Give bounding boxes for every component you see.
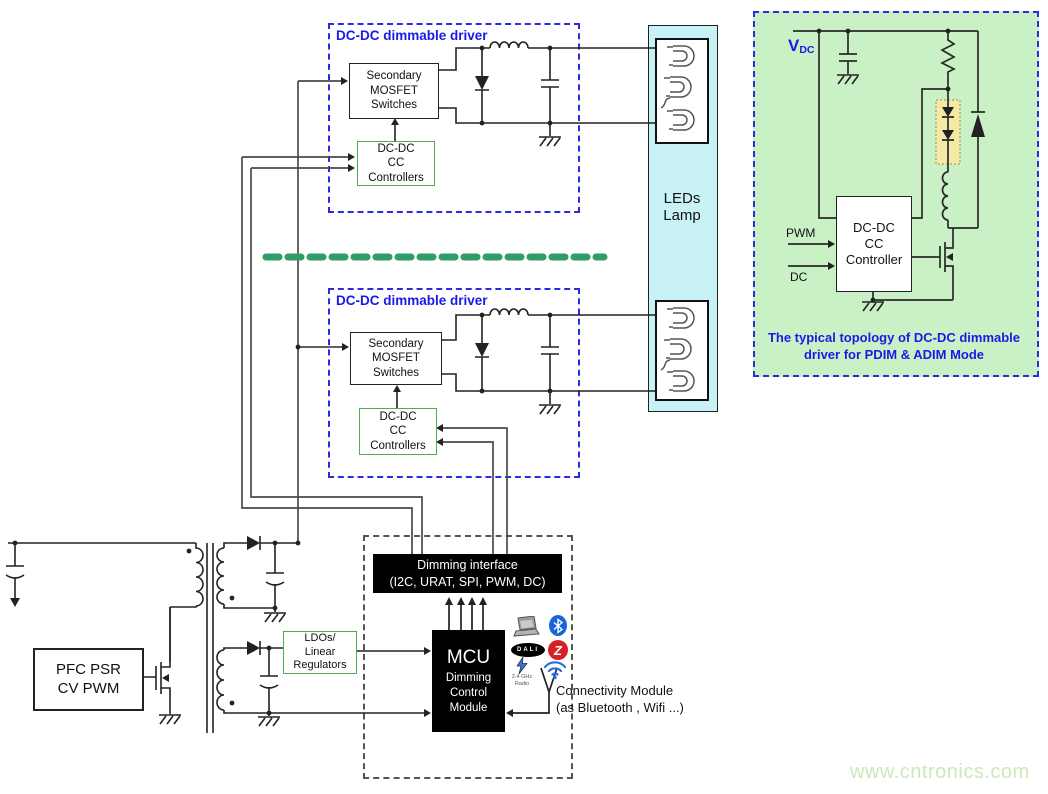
zigbee-icon: Z xyxy=(548,640,568,660)
mcu-title: MCU xyxy=(447,646,490,671)
ldo-linear-regulators-box: LDOs/ Linear Regulators xyxy=(283,631,357,674)
driver-top-title: DC-DC dimmable driver xyxy=(336,28,488,43)
mcu-subtitle: Dimming Control Module xyxy=(446,671,491,716)
dcdc-cc-controllers-top: DC-DC CC Controllers xyxy=(357,141,435,186)
bluetooth-icon xyxy=(549,615,567,636)
wifi-icon xyxy=(542,658,568,680)
dimming-interface-box: Dimming interface (I2C, URAT, SPI, PWM, … xyxy=(373,554,562,593)
laptop-icon xyxy=(512,616,540,638)
secondary-mosfet-switches-bottom: Secondary MOSFET Switches xyxy=(350,332,442,385)
connectivity-module-label: Connectivity Module (as Bluetooth , Wifi… xyxy=(556,683,716,717)
leds-lamp-label: LEDs Lamp xyxy=(648,190,716,224)
led-driver-diagram: DC-DC dimmable driver Secondary MOSFET S… xyxy=(0,0,1048,794)
panel-caption: The typical topology of DC-DC dimmable d… xyxy=(758,330,1030,364)
secondary-mosfet-switches-top: Secondary MOSFET Switches xyxy=(349,63,439,119)
dcdc-cc-controllers-bottom: DC-DC CC Controllers xyxy=(359,408,437,455)
vdc-subscript: DC xyxy=(799,44,814,56)
pfc-psr-cv-pwm-box: PFC PSR CV PWM xyxy=(33,648,144,711)
dimming-interface-protocols: (I2C, URAT, SPI, PWM, DC) xyxy=(389,574,545,590)
dcdc-cc-controller-panel: DC-DC CC Controller xyxy=(836,196,912,292)
dimming-interface-title: Dimming interface xyxy=(417,557,518,573)
watermark: www.cntronics.com xyxy=(850,761,1030,784)
dc-pin-label: DC xyxy=(790,270,807,284)
vdc-symbol: V xyxy=(788,36,799,55)
dali-icon: DALI xyxy=(511,643,545,657)
mcu-box: MCU Dimming Control Module xyxy=(432,630,505,732)
radio-icon-label: 2.4 GHz Radio xyxy=(508,674,536,687)
pwm-pin-label: PWM xyxy=(786,226,815,240)
radio-lightning-icon xyxy=(516,657,528,674)
vdc-label: VDC xyxy=(788,36,815,56)
driver-bottom-title: DC-DC dimmable driver xyxy=(336,293,488,308)
